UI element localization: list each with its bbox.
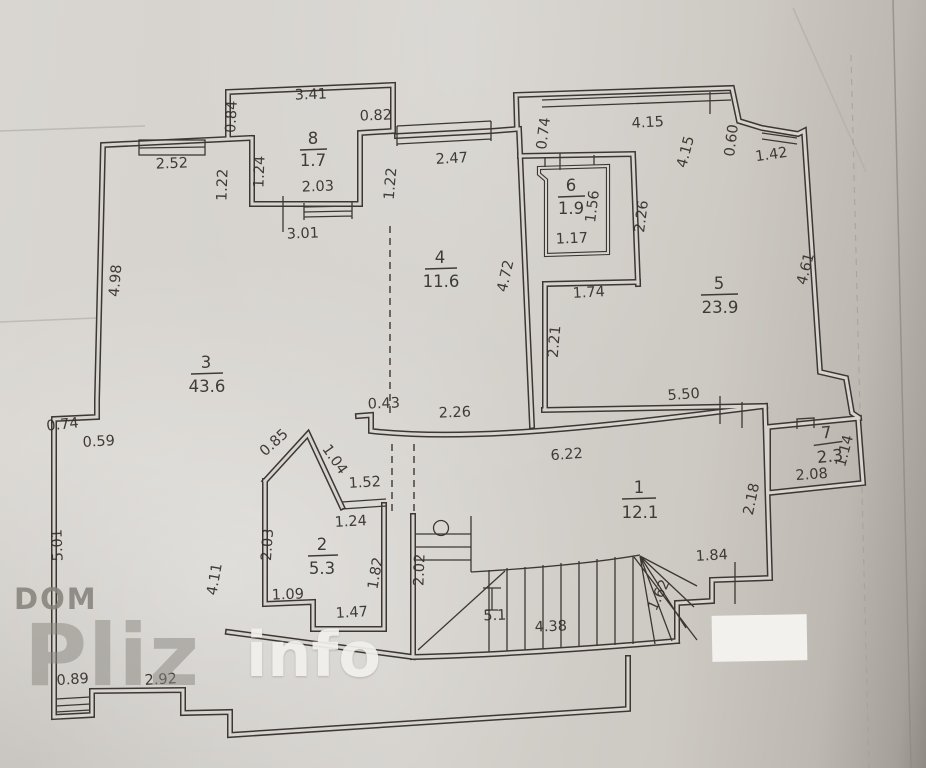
dim-label-226a: 2.26	[632, 200, 652, 234]
room-5-number: 5	[714, 274, 725, 293]
room-6-number: 6	[566, 176, 577, 195]
room-7-number: 7	[820, 423, 832, 443]
room-label-4: 4 11.6	[423, 248, 460, 291]
dim-label-301: 3.01	[286, 225, 319, 242]
dim-label-152: 1.52	[348, 474, 381, 492]
dim-label-122a: 1.22	[214, 168, 231, 201]
dim-label-124b: 1.24	[334, 513, 367, 531]
dim-label-51: 5.1	[483, 608, 507, 625]
room-3-number: 3	[201, 353, 212, 372]
room-4-area: 11.6	[423, 272, 460, 291]
room-4-number: 4	[435, 248, 446, 267]
dim-label-247: 2.47	[435, 150, 468, 168]
dim-label-122b: 1.22	[382, 167, 401, 201]
dim-label-221: 2.21	[546, 325, 565, 359]
room-1-area: 12.1	[622, 503, 659, 522]
room-label-5: 5 23.9	[701, 274, 738, 317]
dim-label-043: 0.43	[367, 395, 400, 412]
room-5-area: 23.9	[702, 298, 739, 317]
dim-label-218: 2.18	[741, 482, 763, 517]
dim-label-117: 1.17	[555, 230, 588, 247]
room-1-number: 1	[634, 478, 645, 497]
room-label-6: 6 1.9	[558, 176, 585, 218]
dim-label-174: 1.74	[572, 284, 605, 302]
dim-label-501: 5.01	[49, 529, 66, 562]
dim-label-411: 4.11	[204, 562, 225, 597]
room-label-8: 8 1.7	[300, 129, 327, 170]
dim-label-082: 0.82	[359, 107, 392, 124]
room-label-2: 2 5.3	[308, 535, 338, 578]
dim-label-074b: 0.74	[46, 415, 80, 434]
dim-label-252: 2.52	[155, 155, 188, 172]
dim-label-438: 4.38	[534, 618, 567, 635]
room-label-3: 3 43.6	[189, 353, 226, 396]
section-cut-symbol	[483, 588, 501, 610]
dim-label-226b: 2.26	[438, 404, 471, 421]
dim-label-472: 4.72	[495, 259, 518, 294]
dim-label-622: 6.22	[550, 446, 583, 464]
dim-label-109: 1.09	[271, 586, 304, 603]
dim-label-208: 2.08	[795, 466, 828, 484]
room-2-area: 5.3	[309, 559, 335, 578]
dim-label-074a: 0.74	[534, 117, 554, 151]
dim-label-415b: 4.15	[674, 134, 698, 169]
room-6-area: 1.9	[558, 199, 584, 218]
room-3-area: 43.6	[189, 377, 226, 396]
dim-label-156: 1.56	[583, 190, 603, 224]
room-8-number: 8	[308, 129, 319, 148]
floor-plan-photo: 0.84 3.41 0.82 2.52 1.22 1.24 2.03 3.01 …	[0, 0, 926, 768]
white-patch	[712, 614, 808, 662]
dim-label-341: 3.41	[294, 86, 327, 103]
dim-label-184: 1.84	[695, 547, 728, 565]
room-label-1: 1 12.1	[622, 478, 659, 522]
room-8-area: 1.7	[300, 151, 326, 170]
room-7-area: 2.3	[816, 446, 844, 468]
dim-label-203a: 2.03	[301, 178, 334, 195]
watermark-pliz: Pliz	[24, 606, 200, 706]
dim-label-550: 5.50	[667, 386, 700, 404]
stair-newel-circle	[434, 521, 449, 536]
dim-label-060: 0.60	[722, 124, 742, 158]
dim-label-084: 0.84	[223, 100, 241, 133]
dashed-lines	[390, 226, 414, 516]
dim-label-498: 4.98	[107, 264, 126, 298]
watermark-info: info	[246, 618, 381, 691]
dim-label-142: 1.42	[754, 145, 788, 165]
dim-label-203b: 2.03	[259, 528, 277, 561]
dim-label-124a: 1.24	[251, 155, 268, 188]
dim-label-059: 0.59	[82, 433, 115, 451]
room-2-number: 2	[317, 535, 328, 554]
dim-label-202: 2.02	[411, 553, 428, 586]
dim-label-415a: 4.15	[631, 114, 664, 132]
